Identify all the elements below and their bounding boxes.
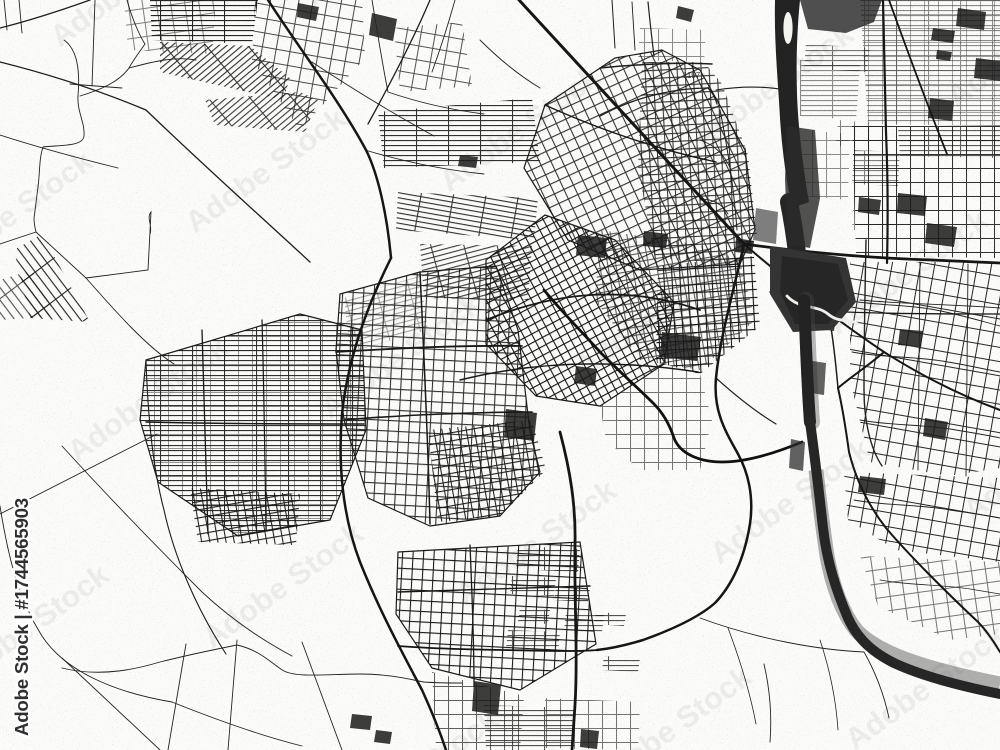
svg-text:Adobe Stock | #1744565903: Adobe Stock | #1744565903 — [11, 498, 32, 736]
svg-text:1197: 1197 — [683, 71, 701, 80]
